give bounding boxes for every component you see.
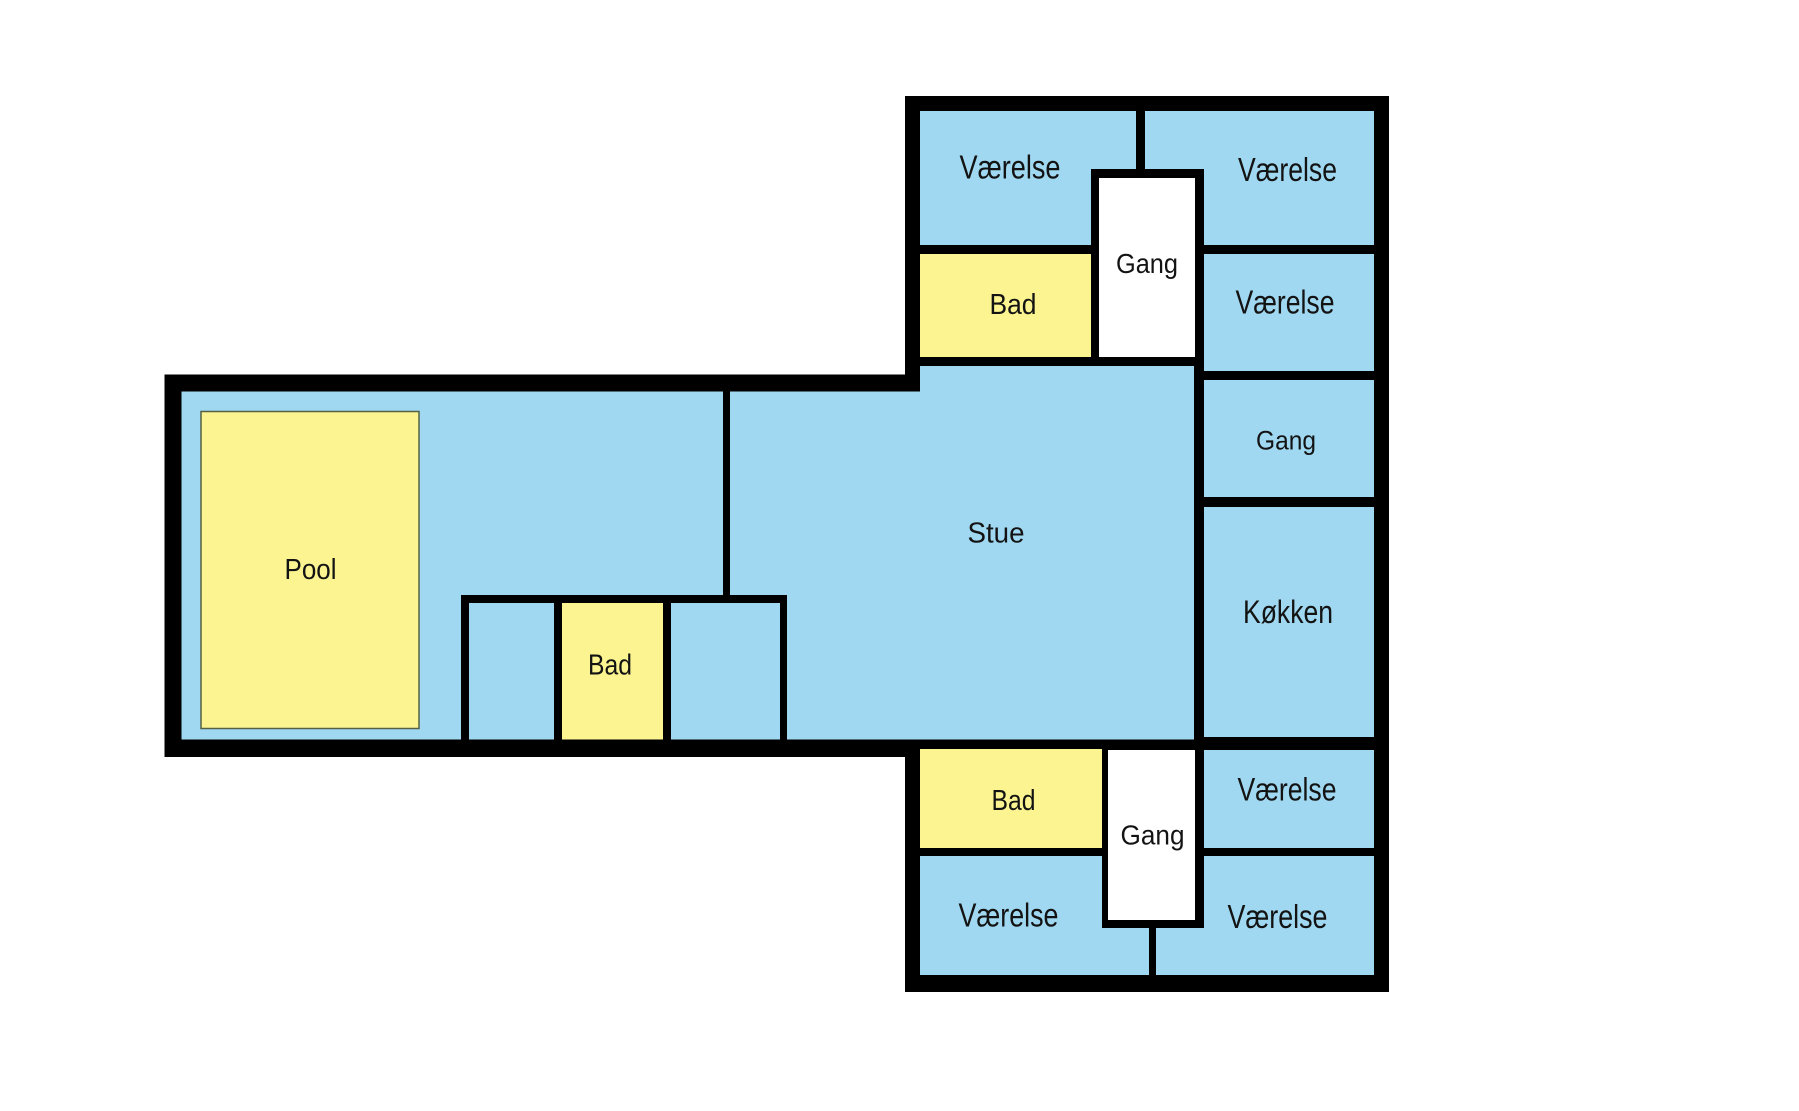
svg-text:Værelse: Værelse xyxy=(959,897,1059,934)
svg-text:Værelse: Værelse xyxy=(1238,151,1337,188)
svg-text:Værelse: Værelse xyxy=(960,149,1061,186)
svg-text:Pool: Pool xyxy=(285,554,337,586)
svg-text:Værelse: Værelse xyxy=(1228,898,1328,935)
svg-text:Gang: Gang xyxy=(1256,426,1316,456)
svg-text:Gang: Gang xyxy=(1121,820,1185,851)
svg-text:Køkken: Køkken xyxy=(1243,594,1333,630)
svg-text:Bad: Bad xyxy=(588,650,632,682)
svg-text:Bad: Bad xyxy=(992,785,1036,817)
svg-text:Værelse: Værelse xyxy=(1238,772,1337,808)
svg-text:Værelse: Værelse xyxy=(1236,284,1335,321)
svg-text:Gang: Gang xyxy=(1116,248,1178,279)
svg-text:Stue: Stue xyxy=(968,518,1025,550)
svg-text:Bad: Bad xyxy=(990,289,1037,321)
